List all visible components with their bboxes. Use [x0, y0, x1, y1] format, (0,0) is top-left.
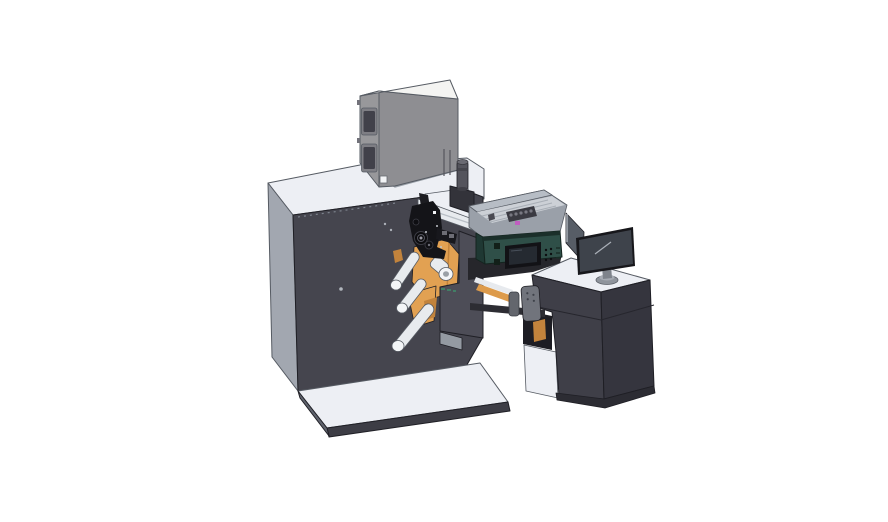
exhaust-cylinder [457, 160, 468, 192]
box-window-upper [362, 108, 378, 135]
box-front-face [379, 91, 458, 187]
unit-socket-lower [494, 259, 500, 265]
magenta-part [515, 221, 520, 225]
sensor-bracket [521, 285, 541, 321]
electronics-box [357, 80, 458, 187]
sensor-bracket-small [509, 292, 519, 316]
box-hinge-lower [357, 138, 360, 143]
shelf-item [533, 319, 546, 342]
box-hinge-upper [357, 100, 360, 105]
control-screen [505, 242, 541, 269]
unit-socket-upper [494, 243, 500, 249]
box-corner-plate [380, 176, 387, 183]
desk-shelf-side [524, 345, 558, 398]
operator-desk [523, 258, 655, 408]
cylinder-cap [457, 160, 468, 165]
desk-right-face [601, 280, 654, 399]
cad-viewport [0, 0, 888, 522]
box-window-lower [362, 144, 378, 172]
machine-render [0, 0, 888, 522]
control-screen-glass [509, 246, 537, 265]
